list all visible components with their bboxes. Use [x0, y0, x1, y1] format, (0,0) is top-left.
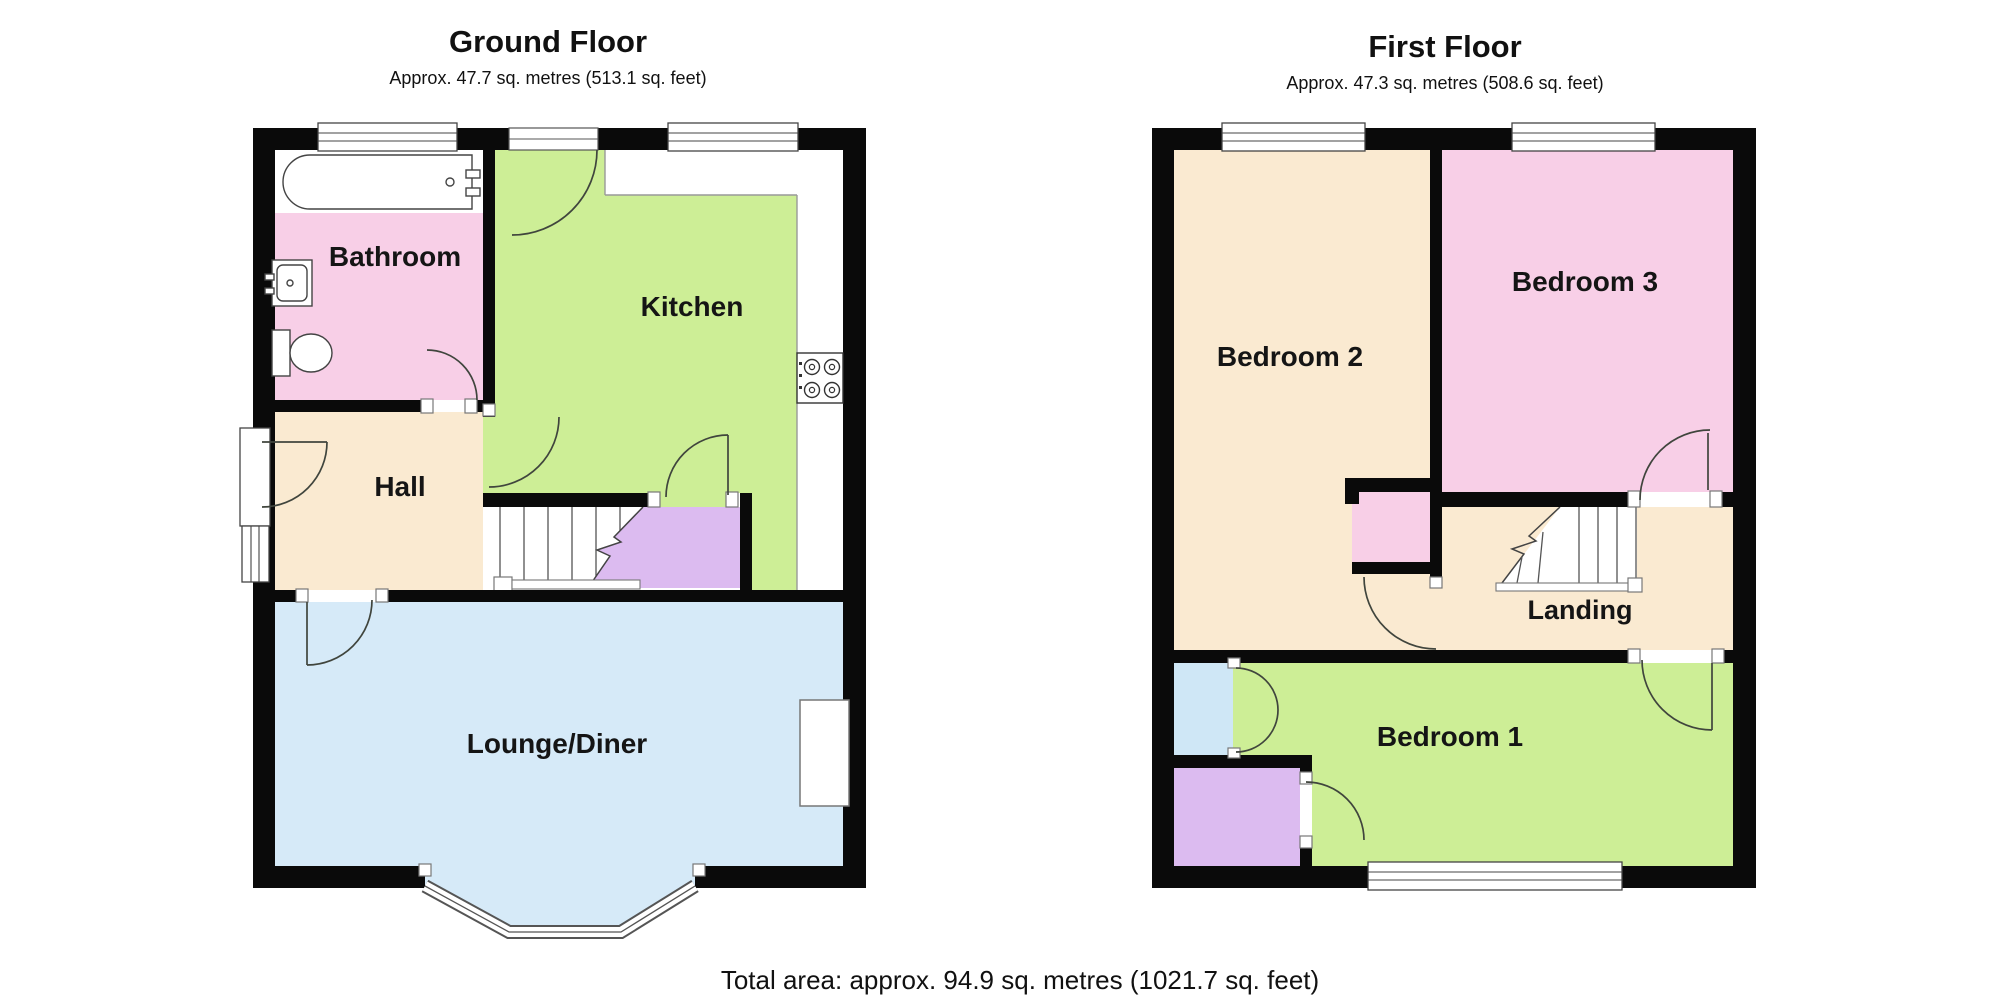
stairs-ground: [483, 507, 740, 592]
label-bedroom3: Bedroom 3: [1512, 266, 1658, 297]
label-bathroom: Bathroom: [329, 241, 461, 272]
label-kitchen: Kitchen: [641, 291, 744, 322]
floorplan-drawing: Bathroom Kitchen Hall Lounge/Diner Groun…: [0, 0, 2000, 1000]
chimney-breast: [800, 700, 849, 806]
first-floor-subtitle: Approx. 47.3 sq. metres (508.6 sq. feet): [1286, 73, 1603, 93]
ground-floor-subtitle: Approx. 47.7 sq. metres (513.1 sq. feet): [389, 68, 706, 88]
airing-cupboard: [1174, 663, 1233, 755]
landing-cupboard: [1352, 492, 1430, 562]
bedroom2-window: [1222, 123, 1365, 151]
label-bedroom2: Bedroom 2: [1217, 341, 1363, 372]
label-lounge-diner: Lounge/Diner: [467, 728, 648, 759]
first-floor-plan: Bedroom 2 Bedroom 3 Landing Bedroom 1 Fi…: [1152, 29, 1756, 890]
bedroom3-window: [1512, 123, 1655, 151]
kitchen-window: [668, 123, 798, 151]
floorplan-page: Bathroom Kitchen Hall Lounge/Diner Groun…: [0, 0, 2000, 1000]
bathroom-window: [318, 123, 457, 151]
ground-floor-title: Ground Floor: [449, 24, 647, 59]
bedroom1-store: [1174, 768, 1300, 866]
label-hall: Hall: [374, 471, 425, 502]
label-bedroom1: Bedroom 1: [1377, 721, 1523, 752]
hob-icon: [797, 353, 843, 403]
ground-floor-plan: Bathroom Kitchen Hall Lounge/Diner Groun…: [240, 24, 866, 934]
room-bedroom3: [1440, 150, 1733, 500]
bedroom1-window: [1368, 862, 1622, 890]
bay-window-floor: [425, 866, 695, 934]
toilet-icon: [272, 330, 332, 376]
first-floor-title: First Floor: [1368, 29, 1521, 64]
total-area-text: Total area: approx. 94.9 sq. metres (102…: [721, 965, 1319, 995]
sink-icon: [265, 260, 312, 306]
hall-window: [242, 526, 269, 582]
label-landing: Landing: [1528, 595, 1633, 625]
bathtub-icon: [283, 155, 480, 209]
